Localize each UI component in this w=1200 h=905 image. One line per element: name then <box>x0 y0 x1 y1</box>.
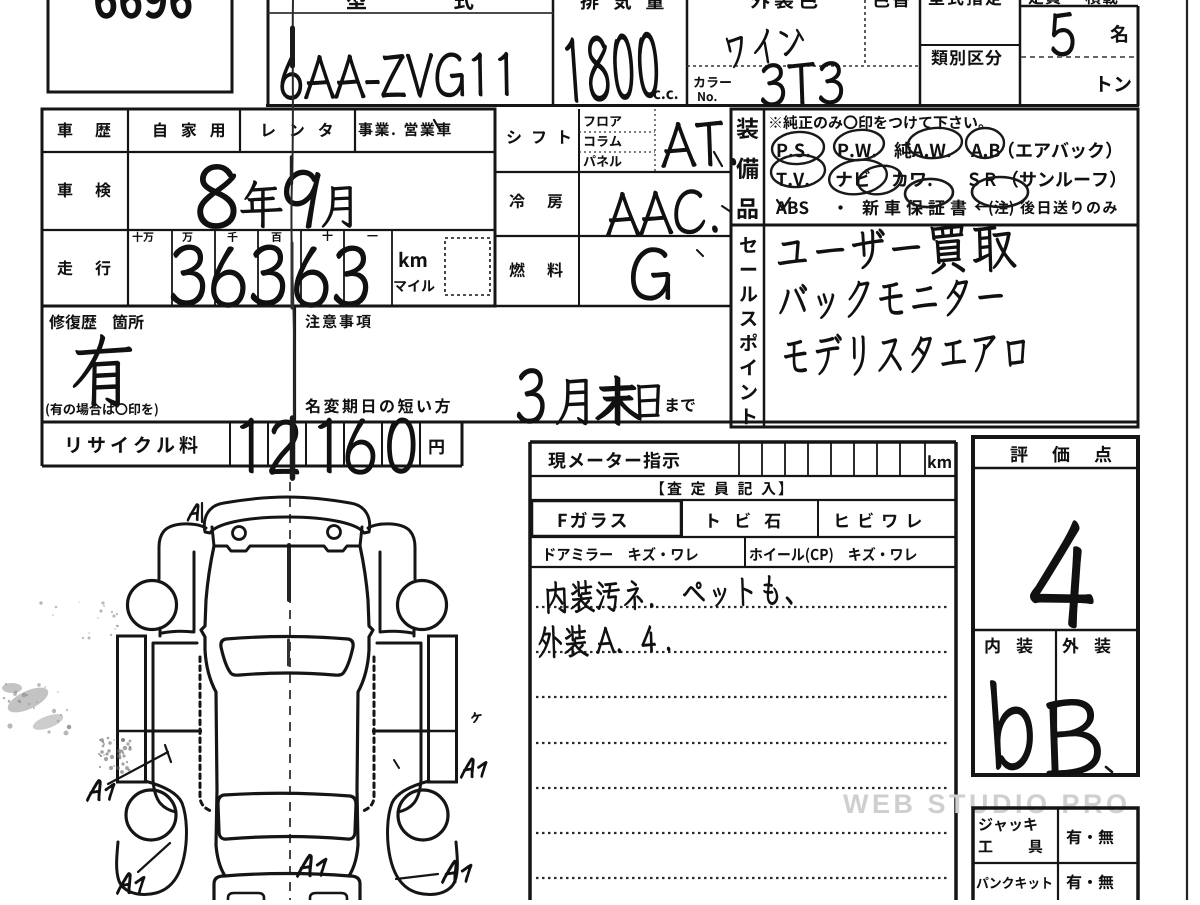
svg-text:WEB STUDIO PRO: WEB STUDIO PRO <box>843 789 1131 819</box>
